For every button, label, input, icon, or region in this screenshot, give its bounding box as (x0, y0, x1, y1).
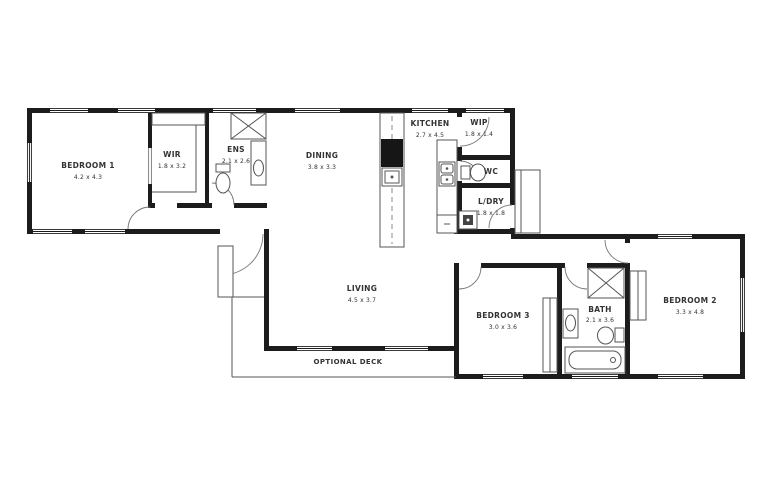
room-label-wir: WIR 1.8 x 3.2 (158, 150, 186, 170)
svg-text:3.0 x 3.6: 3.0 x 3.6 (489, 324, 517, 331)
kitchen-counter-sink (437, 140, 457, 215)
bedroom3-robe (543, 298, 557, 372)
svg-text:1.8 x 1.4: 1.8 x 1.4 (465, 131, 493, 138)
room-label-bedroom-3: BEDROOM 3 3.0 x 3.6 (476, 311, 530, 331)
svg-text:BEDROOM 2: BEDROOM 2 (663, 296, 717, 305)
floor-plan-canvas: BEDROOM 1 4.2 x 4.3 WIR 1.8 x 3.2 ENS 2.… (0, 0, 770, 493)
bedroom2-robe (630, 271, 646, 320)
svg-text:BEDROOM 3: BEDROOM 3 (476, 311, 530, 320)
wc-toilet-icon (461, 164, 486, 181)
svg-text:2.1 x 3.6: 2.1 x 3.6 (586, 317, 614, 324)
room-label-bedroom-2: BEDROOM 2 3.3 x 4.8 (663, 296, 717, 316)
room-label-bath: BATH 2.1 x 3.6 (586, 305, 614, 324)
laundry-washer-icon (459, 211, 477, 229)
kitchen-cupboard (437, 215, 457, 233)
ens-shower-icon (231, 113, 266, 139)
svg-text:WC: WC (484, 167, 499, 176)
side-landing-steps (515, 170, 540, 233)
bath-vanity-icon (563, 309, 578, 338)
svg-text:4.2 x 4.3: 4.2 x 4.3 (74, 174, 102, 181)
svg-text:ENS: ENS (227, 145, 245, 154)
room-label-dining: DINING 3.8 x 3.3 (306, 151, 338, 171)
svg-text:KITCHEN: KITCHEN (411, 119, 450, 128)
bath-toilet-icon (598, 327, 625, 344)
room-label-bedroom-1: BEDROOM 1 4.2 x 4.3 (61, 161, 115, 181)
room-label-kitchen: KITCHEN 2.7 x 4.5 (411, 119, 450, 139)
svg-text:4.5 x 3.7: 4.5 x 3.7 (348, 297, 376, 304)
room-label-wc: WC (484, 167, 499, 176)
svg-text:DINING: DINING (306, 151, 338, 160)
room-label-ens: ENS 2.1 x 2.6 (222, 145, 250, 165)
bath-shower-icon (588, 268, 624, 298)
svg-text:L/DRY: L/DRY (478, 197, 504, 206)
svg-text:WIP: WIP (470, 118, 488, 127)
ens-toilet-icon (216, 164, 230, 193)
svg-text:OPTIONAL DECK: OPTIONAL DECK (314, 358, 383, 366)
svg-text:WIR: WIR (163, 150, 181, 159)
room-label-ldry: L/DRY 1.8 x 1.8 (477, 197, 505, 217)
kitchen-island-bench (380, 113, 404, 247)
entry-porch-column (218, 246, 233, 297)
floor-plan-drawing: BEDROOM 1 4.2 x 4.3 WIR 1.8 x 3.2 ENS 2.… (0, 0, 770, 493)
svg-text:3.3 x 4.8: 3.3 x 4.8 (676, 309, 704, 316)
svg-text:3.8 x 3.3: 3.8 x 3.3 (308, 164, 336, 171)
svg-text:BATH: BATH (588, 305, 612, 314)
svg-text:2.1 x 2.6: 2.1 x 2.6 (222, 158, 250, 165)
bathtub-icon (565, 347, 625, 373)
svg-text:1.8 x 3.2: 1.8 x 3.2 (158, 163, 186, 170)
svg-text:2.7 x 4.5: 2.7 x 4.5 (416, 132, 444, 139)
svg-text:LIVING: LIVING (347, 284, 377, 293)
deck-label: OPTIONAL DECK (314, 358, 383, 366)
room-label-living: LIVING 4.5 x 3.7 (347, 284, 377, 304)
svg-text:1.8 x 1.8: 1.8 x 1.8 (477, 210, 505, 217)
svg-text:BEDROOM 1: BEDROOM 1 (61, 161, 115, 170)
ens-vanity-icon (251, 141, 266, 185)
